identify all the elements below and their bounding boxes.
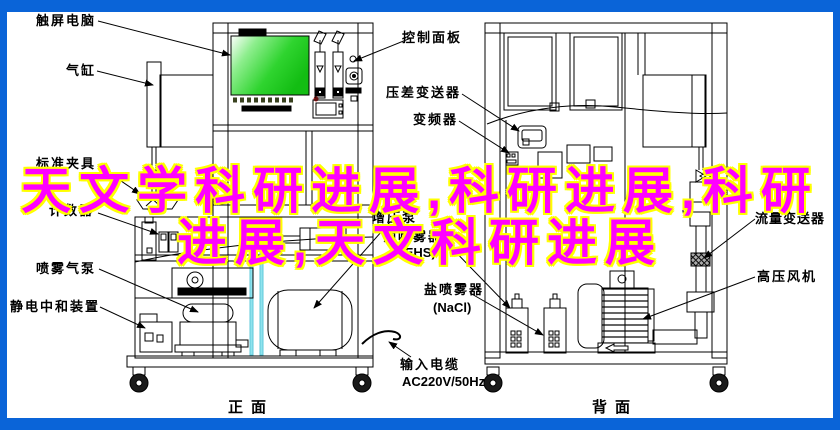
back-view-caption: 背面 <box>592 396 638 417</box>
overlay-title-line1: 天文学科研进展,科研进展,科研 <box>7 165 833 217</box>
oil-sprayer-shape <box>506 294 528 353</box>
leader-diff-pressure <box>462 94 519 131</box>
back-sweep-curve <box>487 106 727 124</box>
overlay-title: 天文学科研进展,科研进展,科研 进展,天文科研进展 <box>7 165 833 269</box>
input-cable-shape <box>362 331 400 344</box>
leader-hp-blower <box>643 277 755 319</box>
front-top-rail <box>213 23 373 33</box>
overlay-title-line2: 进展,天文科研进展 <box>7 217 833 269</box>
caster <box>484 367 502 392</box>
front-shelf <box>213 125 373 131</box>
caster <box>353 367 371 392</box>
duct-column <box>692 75 706 147</box>
spray-air-pump-shape <box>175 304 248 356</box>
leader-air-cylinder <box>97 71 153 85</box>
leader-input-cable <box>389 342 411 357</box>
high-pressure-blower-shape <box>578 271 655 353</box>
static-neutralizer-shape <box>140 314 172 352</box>
caster <box>130 367 148 392</box>
label-input-cable-spec: AC220V/50Hz <box>402 375 485 389</box>
back-doors <box>504 33 622 111</box>
monitor-cap <box>239 29 266 36</box>
panel-buttons <box>313 56 362 118</box>
label-diff-pressure: 压差变送器 <box>386 86 461 100</box>
label-inverter: 变频器 <box>413 113 458 127</box>
label-hp-blower: 高压风机 <box>757 270 817 284</box>
power-led <box>314 97 319 102</box>
leader-touch-screen <box>98 21 230 55</box>
label-touch-screen-pc: 触屏电脑 <box>36 14 96 28</box>
monitor-screen <box>231 36 309 95</box>
pressure-transmitter-shape <box>518 126 546 148</box>
label-salt-sprayer-medium: (NaCl) <box>433 301 471 315</box>
label-air-cylinder: 气缸 <box>66 64 96 78</box>
leader-static-neutralizer <box>100 307 145 328</box>
leader-inverter <box>459 121 509 153</box>
salt-sprayer-shape <box>544 294 566 353</box>
tank <box>268 290 352 356</box>
back-base <box>485 352 727 364</box>
nameplate-bar <box>242 106 291 111</box>
front-view-caption: 正面 <box>228 396 274 417</box>
label-static-neutralizer: 静电中和装置 <box>10 300 100 314</box>
screenshot-frame: 触屏电脑 气缸 标准夹具 计数器 喷雾气泵 静电中和装置 控制面板 压差变送器 … <box>0 0 840 430</box>
back-top-rail <box>485 23 727 33</box>
rotameters <box>314 31 344 98</box>
label-salt-sprayer: 盐喷雾器 <box>424 283 484 297</box>
caster <box>710 367 728 392</box>
label-input-cable: 输入电缆 <box>400 358 460 372</box>
label-control-panel: 控制面板 <box>402 31 462 45</box>
